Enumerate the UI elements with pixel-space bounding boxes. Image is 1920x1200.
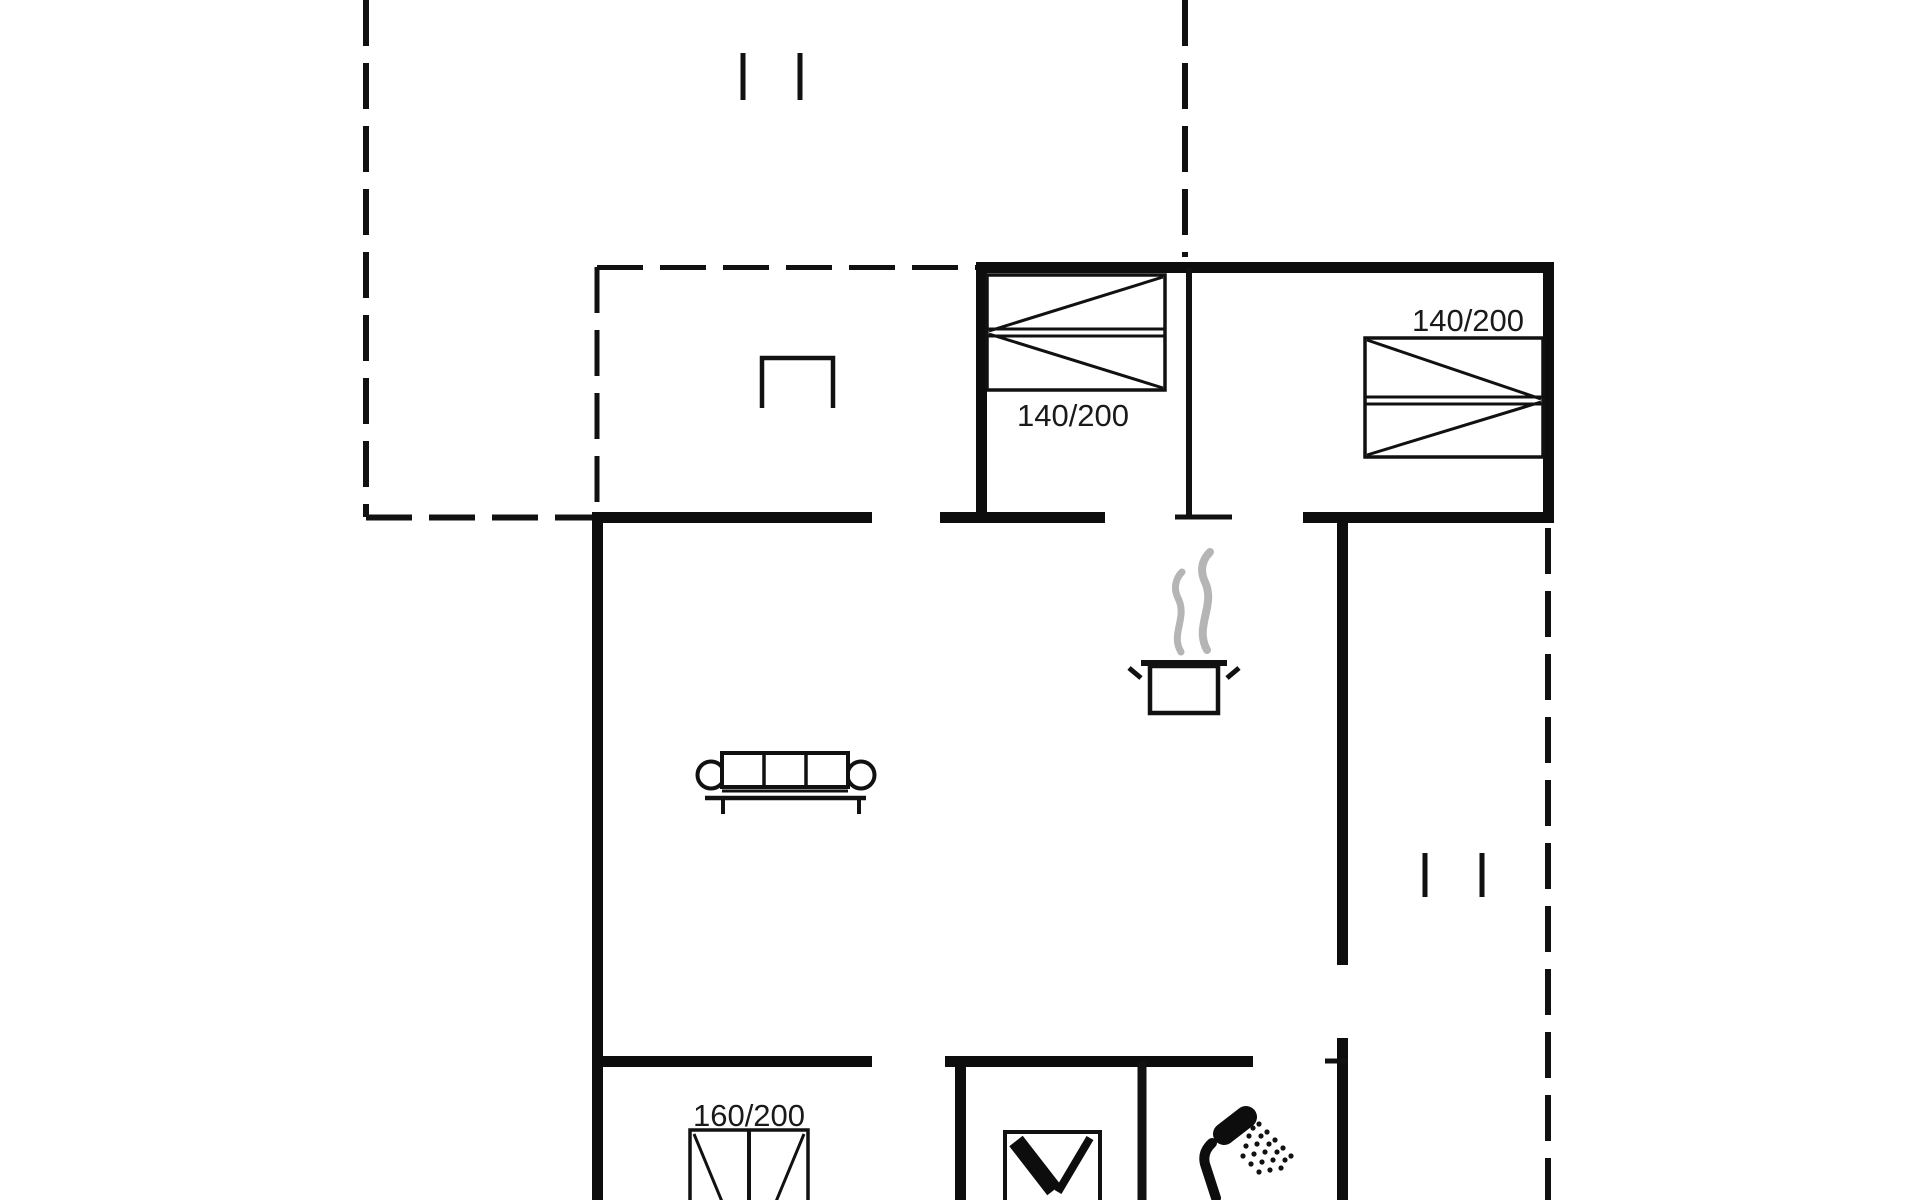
toilet-icon bbox=[1005, 1132, 1100, 1200]
bed-double-2 bbox=[1365, 338, 1543, 457]
sofa-back bbox=[722, 753, 848, 787]
bed-size-label-3: 160/200 bbox=[693, 1098, 805, 1133]
bed-size-label-2: 140/200 bbox=[1412, 303, 1524, 338]
double-bed-icon bbox=[987, 275, 1165, 390]
bed-double-3 bbox=[690, 1130, 808, 1200]
plan-background bbox=[0, 0, 1920, 1200]
bed-double-1 bbox=[987, 275, 1165, 390]
cooking-pot-icon bbox=[1150, 666, 1218, 713]
shower-head bbox=[1224, 1117, 1246, 1134]
floor-plan-canvas: 140/200 140/200 160/200 bbox=[0, 0, 1920, 1200]
bed-size-label-1: 140/200 bbox=[1017, 398, 1129, 433]
sofa-armrest bbox=[848, 762, 875, 789]
